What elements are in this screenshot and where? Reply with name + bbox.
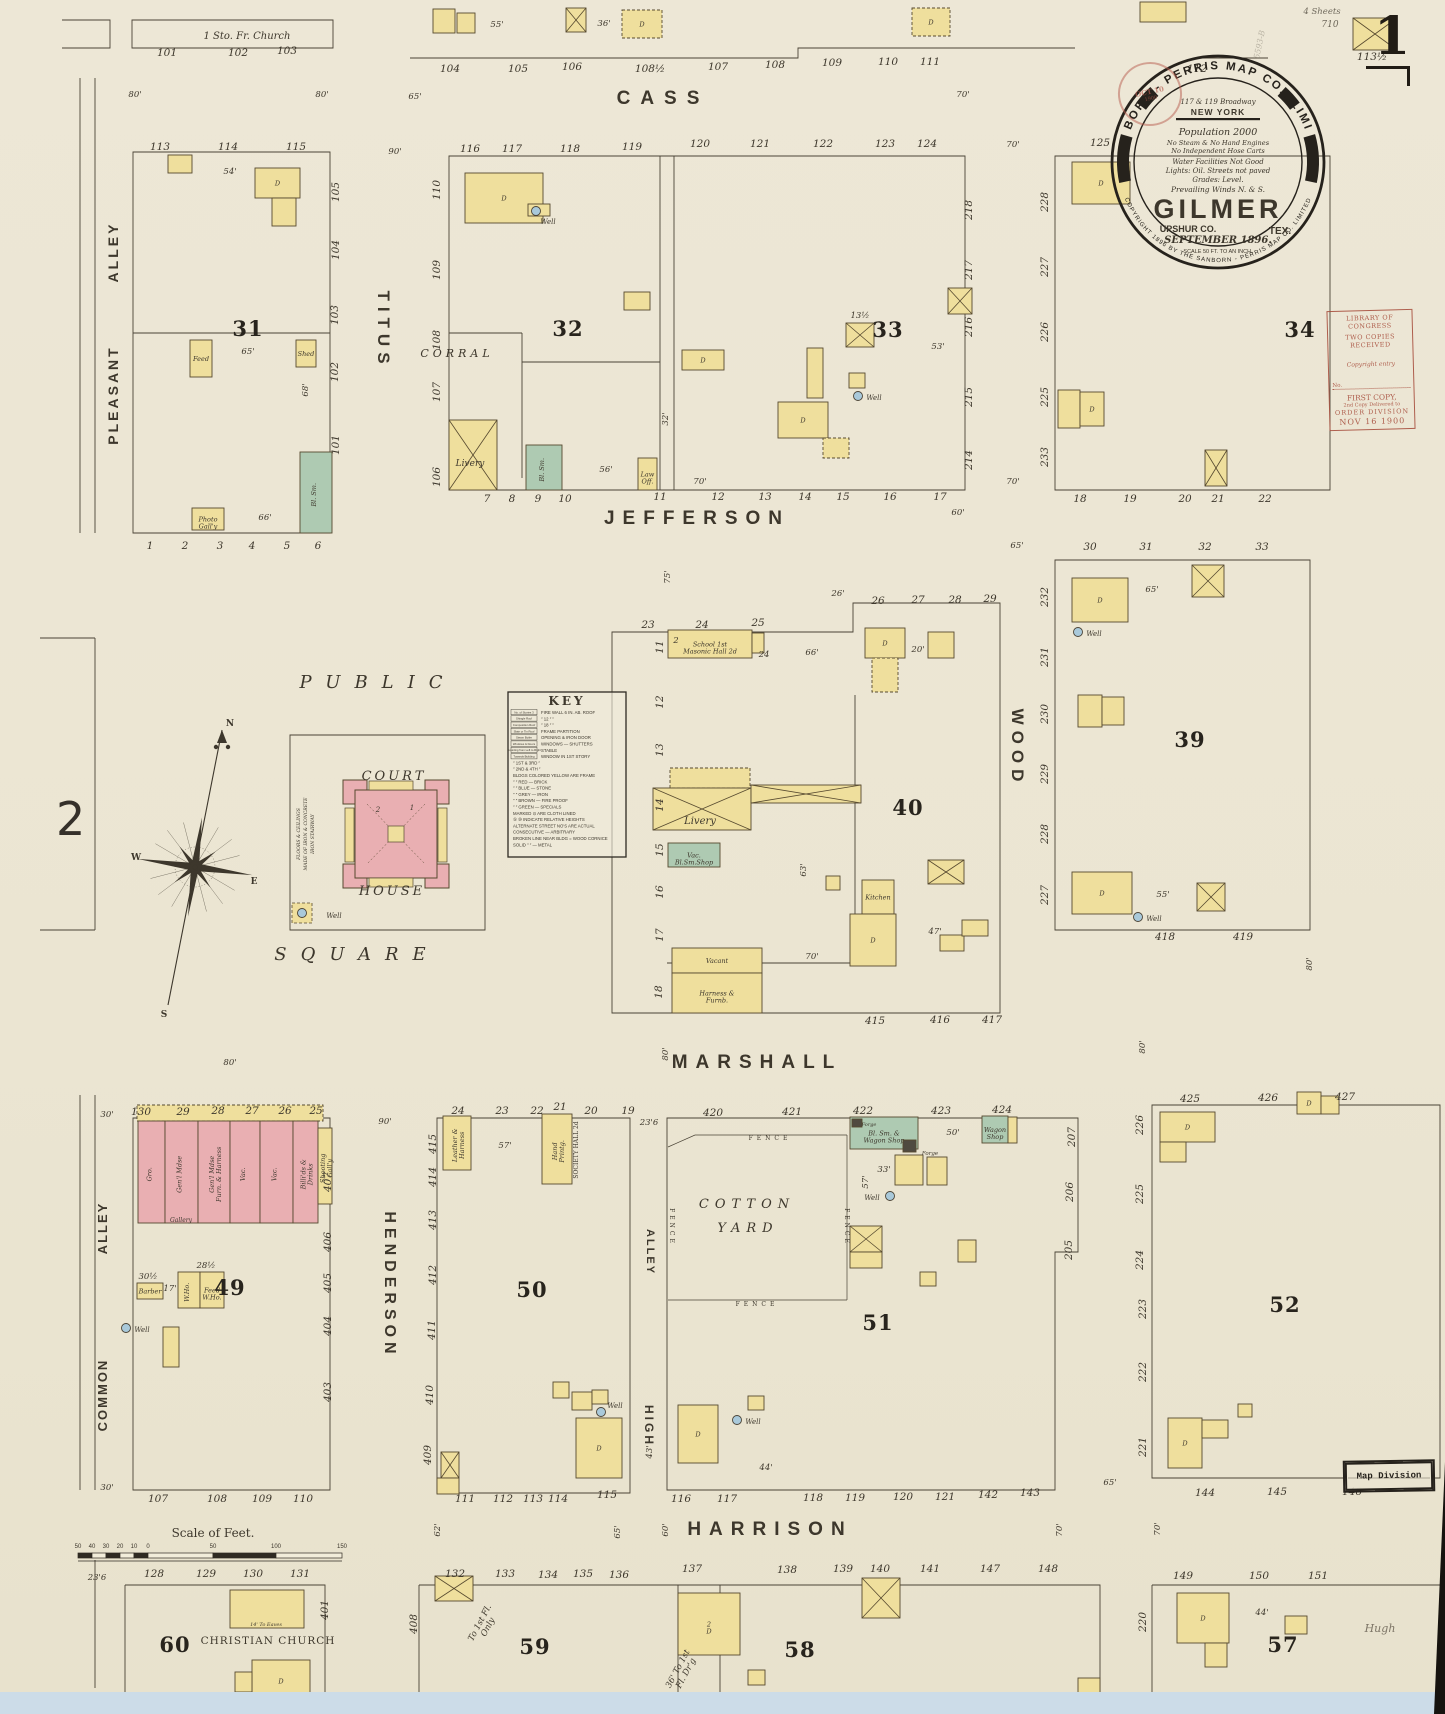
corral-label: CORRAL [420, 347, 493, 360]
building-label: D [1096, 596, 1103, 604]
court-house-label: COURT [362, 769, 427, 784]
court-house-floors-note: IRON STAIRWAY [310, 813, 316, 855]
lot-number: 227 [1039, 885, 1051, 906]
lot-number: 12 [654, 695, 666, 709]
lot-number: 115 [597, 1489, 617, 1501]
lot-number: 105 [508, 63, 528, 75]
well-icon [733, 1416, 742, 1425]
well-label: Well [864, 1194, 879, 1202]
lot-number: 216 [963, 317, 975, 338]
key-row: FIRE WALL 6 IN. AB. ROOF [541, 710, 595, 715]
lot-number: 113 [150, 141, 170, 153]
lot-number: 207 [1066, 1127, 1078, 1148]
building-label: D [1097, 179, 1104, 187]
key-row: BLDGS COLORED YELLOW ARE FRAME [513, 773, 595, 778]
lot-number: 151 [1308, 1570, 1328, 1582]
sheet-number-bracket [1407, 66, 1410, 86]
key-row: FRAME PARTITION [541, 729, 580, 734]
lot-number: 14 [654, 798, 666, 811]
publisher-stamp-state: TEX. [1269, 226, 1291, 237]
lot-number: 148 [1038, 1563, 1058, 1575]
measurement-note: 30' [100, 1483, 113, 1493]
key-row: ″ ″ BROWN — FIRE PROOF [513, 798, 568, 803]
lot-number: 141 [920, 1563, 940, 1575]
measurement-note: 80' [128, 90, 141, 100]
measurement-note: 65' [241, 347, 254, 357]
block-number: 40 [892, 795, 923, 820]
building [437, 1478, 459, 1494]
measurement-note: 26' [830, 589, 844, 599]
well-label: Well [540, 218, 555, 226]
court-house: 21COURTHOUSEFLOORS & CEILINGSMADE OF IRO… [296, 769, 449, 899]
lot-number: 10 [558, 493, 572, 505]
lot-number: 415 [864, 1015, 885, 1027]
loc-stamp-line: NOV 16 1900 [1330, 416, 1414, 427]
lot-number: 29 [982, 593, 997, 605]
building-label: Barber [138, 1287, 163, 1295]
measurement-note: 28½ [195, 1260, 215, 1271]
lot-number: 114 [218, 141, 238, 153]
measurement-note: 53' [931, 342, 944, 352]
buildings: DDDFeedShedPhotoGall'yBl. Sm.DBl. Sm.Law… [137, 2, 1397, 1702]
lot-number: 129 [196, 1568, 216, 1580]
publisher-stamp-date: SEPTEMBER 1896. [1164, 235, 1272, 246]
society-hall-label: SOCIETY HALL 2d [573, 1121, 580, 1178]
building-label: Vacant [706, 957, 729, 965]
key-row: WINDOWS — SHUTTERS [541, 742, 593, 747]
lot-number: 116 [460, 143, 480, 155]
street-label-pleasant-alley: ALLEY [105, 222, 121, 283]
key-title: KEY [548, 694, 585, 708]
measurement-note: 70' [1006, 477, 1019, 487]
lot-number: 5 [284, 540, 291, 552]
map-key: KEYNo. of Stories 3FIRE WALL 6 IN. AB. R… [507, 692, 626, 857]
lot-number: 13 [654, 743, 666, 757]
building-label: Vac. [239, 1167, 247, 1181]
page-right-edge-shadow [1434, 1462, 1445, 1714]
building [433, 9, 455, 33]
building [928, 632, 954, 658]
lot-number: 124 [917, 138, 937, 150]
building [163, 1327, 179, 1367]
lot-number: 118 [560, 143, 580, 155]
lot-number: 109 [252, 1493, 272, 1505]
key-symbol-label: Steam Boiler [516, 736, 532, 740]
well-label: Well [1146, 915, 1161, 923]
lot-number: 108 [765, 59, 785, 71]
scale-bar: Scale of Feet.5040302010050100150 [75, 1526, 348, 1561]
building-label: Bl. Sm. [310, 483, 318, 508]
lot-number: 109 [431, 260, 443, 280]
lot-number: 21 [1210, 493, 1224, 505]
lot-number: 3 [217, 540, 224, 552]
building-label: D [881, 639, 888, 647]
measurement-note: 57' [498, 1141, 511, 1151]
street-label-wood: WOOD [1008, 709, 1027, 788]
lot-number: 15 [836, 491, 850, 503]
measurement-note: 2 [672, 636, 678, 646]
building-label: Gen'l Mdse [176, 1156, 184, 1193]
scale-bar-segment [276, 1553, 342, 1558]
well-icon [532, 207, 541, 216]
lot-number: 147 [980, 1563, 1000, 1575]
measurement-note: 65' [1103, 1478, 1116, 1488]
lot-number: 131 [290, 1568, 310, 1580]
key-row: ″ ″ GREY — IRON [513, 792, 548, 797]
lot-number: 28 [210, 1105, 225, 1117]
lot-number: 215 [963, 387, 975, 408]
map-text: 2 [375, 806, 381, 814]
lot-number: 117 [502, 143, 522, 155]
lot-number: 412 [427, 1265, 439, 1286]
lot-number: 125 [1090, 137, 1110, 149]
building-label: D [1098, 889, 1105, 897]
lot-number: 423 [930, 1105, 951, 1117]
block-number: 49 [214, 1275, 245, 1300]
lot-number: 111 [920, 56, 940, 68]
scale-bar-segment [213, 1553, 276, 1558]
scale-bar-label: 50 [210, 1544, 217, 1550]
scale-bar-label: 50 [75, 1544, 82, 1550]
lot-number: 106 [431, 467, 443, 487]
lot-number: 19 [1123, 493, 1137, 505]
lot-number: 205 [1063, 1240, 1075, 1261]
well-label: Well [326, 912, 341, 920]
lot-number: 103 [277, 45, 297, 57]
lot-number: 14 [798, 491, 811, 503]
key-symbol-label: Shingle Roof [516, 717, 532, 721]
measurement-note: 24 [758, 650, 770, 660]
livery-label: Livery [683, 816, 716, 827]
block-number: 52 [1269, 1292, 1300, 1317]
measurement-note: 70' [1153, 1522, 1163, 1535]
lot-number: 26 [277, 1105, 292, 1117]
building [748, 1396, 764, 1410]
building-label: Vac. [271, 1167, 279, 1181]
lot-number: 227 [1039, 257, 1051, 278]
lot-number: 232 [1039, 587, 1051, 608]
lot-number: 225 [1134, 1184, 1146, 1205]
key-row: ″ 1ST & 3RD ″ [513, 760, 541, 765]
well-icon [1134, 913, 1143, 922]
building [849, 373, 865, 388]
building-label: HandPrintg. [551, 1140, 566, 1164]
publisher-stamp-winds: Prevailing Winds N. & S. [1170, 185, 1265, 194]
compass-north-label: N [226, 719, 234, 729]
lot-number: 24 [694, 619, 708, 631]
lot-number: 403 [322, 1382, 334, 1403]
public-square-label: PUBLIC [298, 672, 456, 693]
lot-number: 27 [910, 594, 925, 606]
lot-number: 218 [963, 200, 975, 221]
lot-number: 422 [852, 1105, 873, 1117]
lot-number: 421 [781, 1106, 802, 1118]
wells: WellWellWellWellWellWellWellWellWell [122, 207, 1162, 1427]
lot-number: 31 [1139, 541, 1152, 553]
block-number: 57 [1267, 1632, 1298, 1657]
building [553, 1382, 569, 1398]
sheet-number-bracket [1366, 66, 1410, 69]
compass-north-arrow [217, 730, 227, 743]
adjacent-sheet-number: 2 [56, 792, 85, 846]
court-house-floors-note: MADE OF IRON & CONCRETE [303, 797, 309, 872]
key-row: ″ 2ND & 4TH ″ [513, 767, 541, 772]
lot-number: 113 [523, 1493, 543, 1505]
lot-number: 30 [1083, 541, 1097, 553]
publisher-stamp: SANBORN - PERRIS MAP CO., LIMITEDCOPYRIG… [0, 0, 1324, 268]
building-label: W.Ho. [183, 1283, 191, 1302]
building-label: LawOff. [640, 470, 655, 485]
lot-number: 6 [315, 540, 322, 552]
measurement-note: 75' [663, 570, 673, 583]
building-label: D [1199, 1614, 1206, 1622]
scale-bar-segment [106, 1553, 120, 1558]
lot-number: 133 [495, 1568, 515, 1580]
measurement-note: 70' [805, 952, 818, 962]
key-row: BROKEN LINE NEAR BLDG = WOOD CORNICE [513, 836, 608, 841]
lot-number: 231 [1039, 647, 1051, 668]
building [852, 1119, 862, 1127]
lot-number: 130 [131, 1106, 151, 1118]
lot-number: 101 [330, 435, 342, 455]
measurement-note: 17' [163, 1284, 176, 1294]
court-house-label: HOUSE [358, 884, 425, 899]
lot-number: 420 [702, 1107, 723, 1119]
lot-number: 406 [322, 1232, 334, 1253]
measurement-note: 54' [223, 167, 236, 177]
lot-number: 25 [750, 617, 765, 629]
lot-number: 105 [330, 182, 342, 202]
building-label: D [500, 194, 507, 202]
lot-number: 29 [175, 1106, 190, 1118]
lot-number: 411 [426, 1320, 438, 1341]
lot-number: 7 [484, 493, 491, 505]
building [1058, 390, 1080, 428]
lot-number: 19 [621, 1105, 635, 1117]
building-label: D [1088, 405, 1095, 413]
key-row: ″ ″ RED — BRICK [513, 779, 547, 784]
scale-bar-label: 100 [271, 1544, 282, 1550]
lot-number: 143 [1020, 1487, 1040, 1499]
measurement-note: 66' [805, 648, 818, 658]
building [895, 1155, 923, 1185]
measurement-note: 13½ [850, 310, 869, 321]
lot-number: 426 [1257, 1092, 1278, 1104]
lot-number: 22 [1257, 493, 1272, 505]
lot-number: 122 [813, 138, 833, 150]
building [927, 1157, 947, 1185]
scale-bar-label: 30 [103, 1544, 110, 1550]
scale-bar-segment [78, 1553, 92, 1558]
well-icon [854, 392, 863, 401]
lot-number: 415 [427, 1134, 439, 1155]
lot-number: 413 [427, 1210, 439, 1231]
key-symbol-label: Composition Roof [513, 723, 535, 727]
measurement-note: 36' [597, 19, 610, 29]
lot-number: 111 [455, 1493, 475, 1505]
building-label: PhotoGall'y [198, 515, 218, 530]
lot-number: 17 [654, 928, 666, 942]
fence-label: FENCE [668, 1208, 675, 1246]
compass-east-label: E [251, 877, 258, 887]
lot-number: 21 [552, 1101, 566, 1113]
lot-number: 101 [157, 47, 177, 59]
building [1238, 1404, 1252, 1417]
building-label: D [799, 416, 806, 424]
lot-number: 108 [207, 1493, 227, 1505]
building [1140, 2, 1186, 22]
building-label: D [638, 20, 645, 28]
well-icon [597, 1408, 606, 1417]
lot-number: 104 [440, 63, 460, 75]
building [168, 155, 192, 173]
fence-label: FENCE [843, 1208, 850, 1246]
livery-label: Livery [455, 459, 486, 469]
building [826, 876, 840, 890]
building [1008, 1117, 1017, 1143]
street-label-marshall: MARSHALL [672, 1052, 843, 1073]
lot-number: 28 [947, 594, 962, 606]
lot-number: 107 [708, 61, 728, 73]
lot-number: 139 [833, 1563, 853, 1575]
lot-number: 110 [293, 1493, 313, 1505]
lot-number: 206 [1064, 1182, 1076, 1203]
lot-number: 230 [1039, 704, 1051, 725]
lot-number: 150 [1249, 1570, 1269, 1582]
building-label: Bl. Sm. &Wagon Shop [863, 1129, 905, 1144]
publisher-stamp-hose-carts: No Independent Hose Carts [1170, 147, 1265, 155]
measurement-note: 56' [599, 465, 612, 475]
lot-number: 2 [181, 540, 189, 552]
measurement-note: To 1st Fl.Only [466, 1603, 502, 1647]
measurement-note: 68' [301, 383, 311, 396]
block-outline [62, 20, 110, 48]
street-label-pleasant: PLEASANT [105, 345, 121, 444]
building-label: D [595, 1444, 602, 1452]
street-label-harrison: HARRISON [687, 1519, 852, 1540]
building-label: D [1305, 1099, 1312, 1107]
map-text: Forge [921, 1151, 939, 1157]
lot-number: 135 [573, 1568, 593, 1580]
building [940, 935, 964, 951]
lot-number: 424 [991, 1104, 1012, 1116]
scale-bar-segment [134, 1553, 148, 1558]
street-label-cass: CASS [617, 88, 710, 109]
key-symbol-label: No. of Stories 3 [514, 710, 534, 714]
lot-number: 419 [1232, 931, 1253, 943]
lot-number: 17 [933, 491, 947, 503]
scale-bar-segment [148, 1553, 213, 1558]
key-row: ⑤ ⑩ INDICATE RELATIVE HEIGHTS [513, 817, 585, 822]
key-symbol-label: Slate or Tin Roof [514, 729, 535, 733]
key-row: ″ ″ GREEN — SPECIALS [513, 805, 562, 810]
map-text: 14' To Eaves [250, 1622, 282, 1628]
lot-number: 16 [654, 885, 666, 899]
lot-number: 18 [653, 985, 665, 999]
lot-number: 33 [1255, 541, 1269, 553]
lot-number: 8 [509, 493, 516, 505]
publisher-stamp-lights: Lights: Oil. Streets not paved [1165, 167, 1271, 175]
building [850, 1252, 882, 1268]
well-label: Well [866, 394, 881, 402]
measurement-note: 65' [613, 1525, 623, 1538]
measurement-note: 33' [877, 1165, 890, 1175]
block-number: 60 [159, 1632, 190, 1657]
building-label: D [277, 1677, 284, 1685]
lot-number: 136 [609, 1569, 629, 1581]
library-of-congress-stamp: Library of Congress Two Copies Received … [1326, 309, 1415, 431]
building-label: Bl. Sm. [538, 458, 546, 483]
lot-number: 20 [1177, 493, 1192, 505]
court-house-porch [438, 808, 447, 862]
lot-number: 102 [329, 362, 341, 382]
lot-number: 27 [244, 1105, 259, 1117]
lot-number: 408 [408, 1614, 420, 1635]
compass-rose: NWES [130, 719, 259, 1020]
building-label: D [1184, 1123, 1191, 1131]
measurement-note: 23'6 [639, 1118, 659, 1128]
measurement-note: 80' [1305, 957, 1315, 970]
measurement-note: 55' [490, 20, 503, 30]
measurement-note: 44' [758, 1463, 772, 1473]
compass-south-label: S [161, 1010, 168, 1020]
building [903, 1140, 916, 1152]
lot-number: 110 [878, 56, 898, 68]
publisher-stamp-ring-segment [1309, 136, 1313, 182]
public-square-label: SQUARE [274, 944, 439, 965]
lot-number: 12 [711, 491, 725, 503]
fence-label: FENCE [749, 1135, 792, 1142]
block-number: 58 [784, 1637, 815, 1662]
lot-number: 116 [671, 1493, 691, 1505]
lot-number: 11 [653, 491, 666, 503]
lot-number: 16 [883, 491, 897, 503]
building-label: Leather &Harness [451, 1128, 466, 1163]
map-division-stamp: Map Division [1345, 1461, 1433, 1491]
lot-number: 22 [529, 1105, 544, 1117]
building-label: Gro. [146, 1167, 154, 1181]
publisher-stamp-county: UPSHUR CO. [1160, 224, 1217, 234]
christian-church-label: CHRISTIAN CHURCH [201, 1635, 336, 1647]
lot-number: 112 [493, 1493, 513, 1505]
lot-number: 416 [929, 1014, 950, 1026]
lot-number: 115 [286, 141, 306, 153]
lot-number: 128 [144, 1568, 164, 1580]
block-number: 32 [552, 316, 583, 341]
publisher-stamp-engines: No Steam & No Hand Engines [1166, 139, 1270, 147]
building [1102, 697, 1124, 725]
lot-number: 417 [981, 1014, 1002, 1026]
scale-bar-title: Scale of Feet. [172, 1526, 255, 1540]
lot-number: 4 [248, 540, 256, 552]
map-text: 1 [410, 804, 414, 812]
measurement-note: 80' [315, 90, 328, 100]
measurement-note: 90' [388, 147, 401, 157]
fence-label: FENCE [736, 1301, 779, 1308]
lot-number: 106 [562, 61, 582, 73]
building [272, 198, 296, 226]
compass-star [131, 809, 260, 924]
lot-number: 401 [319, 1600, 331, 1621]
lot-number: 107 [148, 1493, 168, 1505]
building [1160, 1142, 1186, 1162]
lot-number: 102 [228, 47, 248, 59]
lot-number: 407 [322, 1172, 334, 1193]
well-icon [298, 909, 307, 918]
lot-number: 1 [147, 540, 154, 552]
pencil-note: 4 Sheets [1302, 7, 1341, 17]
measurement-note: 50' [946, 1128, 959, 1138]
